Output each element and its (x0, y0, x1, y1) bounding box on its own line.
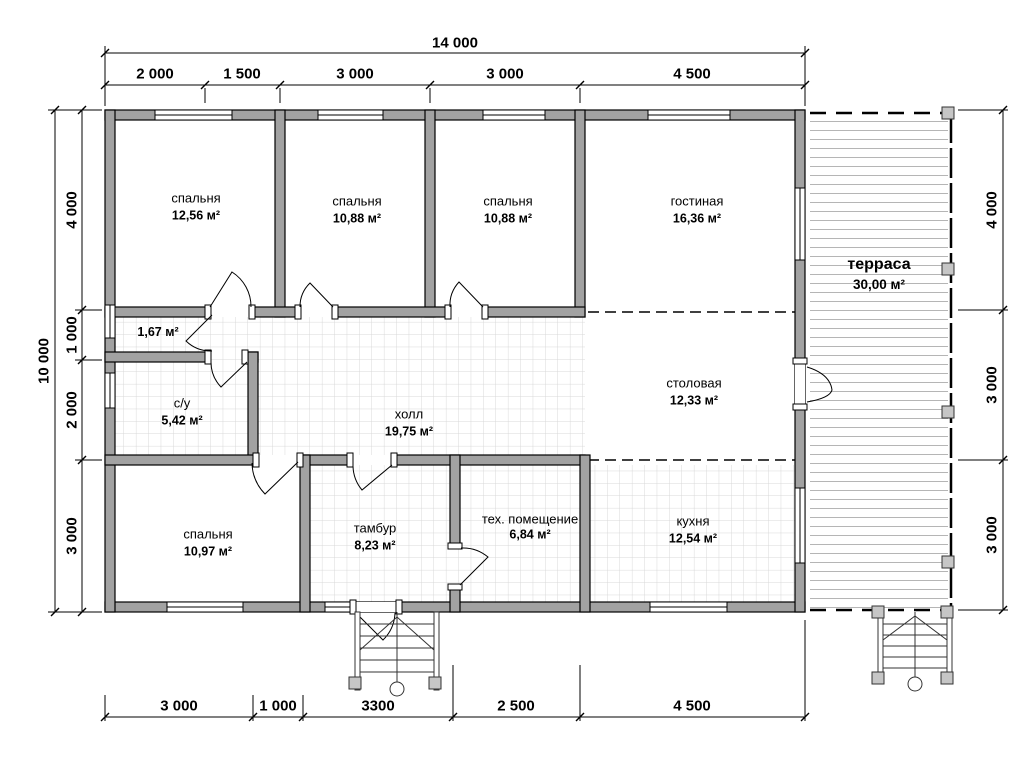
room-label-hall: холл 19,75 м² (385, 406, 433, 439)
window-top-livingroom (648, 110, 730, 120)
room-area: 10,97 м² (183, 543, 232, 559)
dim-bottom-seg-4: 2 500 (497, 698, 535, 715)
room-label-closet: 1,67 м² (137, 324, 178, 340)
room-label-diningroom: столовая 12,33 м² (666, 375, 721, 408)
room-label-bedroom-1: спальня 12,56 м² (171, 190, 220, 223)
dim-bottom-seg-1: 3 000 (160, 698, 198, 715)
room-label-bedroom-2: спальня 10,88 м² (332, 193, 381, 226)
room-name: столовая (666, 375, 721, 392)
dim-bottom-seg-2: 1 000 (259, 698, 297, 715)
room-area: 6,84 м² (477, 527, 583, 541)
dim-left-seg-3: 2 000 (64, 391, 81, 429)
room-label-vestibule: тамбур 8,23 м² (354, 520, 397, 553)
room-area: 12,54 м² (669, 530, 717, 546)
room-area: 10,88 м² (483, 210, 532, 226)
dim-top-seg-1: 2 000 (136, 66, 174, 83)
room-area: 5,42 м² (161, 412, 202, 428)
room-name: спальня (171, 190, 220, 207)
dim-bottom-seg-3: 3300 (361, 698, 394, 715)
dim-top-seg-5: 4 500 (673, 66, 711, 83)
room-name: гостиная (671, 193, 724, 210)
room-label-terrace: терраса 30,00 м² (847, 255, 910, 293)
dim-top-total: 14 000 (432, 35, 478, 52)
room-name: спальня (483, 193, 532, 210)
window-left-bathroom (105, 373, 115, 408)
window-bottom-kitchen (650, 602, 727, 612)
dim-top-seg-3: 3 000 (336, 66, 374, 83)
room-area: 16,36 м² (671, 210, 724, 226)
room-label-utility: тех. помещение 6,84 м² (477, 512, 583, 541)
room-label-livingroom: гостиная 16,36 м² (671, 193, 724, 226)
dim-left-seg-1: 4 000 (64, 191, 81, 229)
room-area: 19,75 м² (385, 423, 433, 439)
room-name: тех. помещение (477, 512, 583, 527)
room-name: с/у (161, 395, 202, 412)
room-area: 8,23 м² (354, 537, 397, 553)
dim-left-seg-2: 1 000 (64, 316, 81, 354)
window-top-bedroom3 (483, 110, 545, 120)
window-bottom-vestibule (325, 602, 353, 612)
room-label-kitchen: кухня 12,54 м² (669, 513, 717, 546)
terrace-deck-hatch (810, 113, 951, 610)
dim-left-total: 10 000 (36, 338, 53, 384)
window-top-bedroom2 (318, 110, 383, 120)
dim-bottom-seg-5: 4 500 (673, 698, 711, 715)
floor-plan-canvas: спальня 12,56 м² спальня 10,88 м² спальн… (0, 0, 1028, 771)
terrace-porch-stairs (872, 606, 953, 691)
room-label-bedroom-4: спальня 10,97 м² (183, 526, 232, 559)
room-name: спальня (183, 526, 232, 543)
room-name: тамбур (354, 520, 397, 537)
room-name: терраса (847, 255, 910, 276)
floor-plan-drawing (0, 0, 1028, 771)
room-name: кухня (669, 513, 717, 530)
room-area: 12,33 м² (666, 392, 721, 408)
dim-right-seg-3: 3 000 (984, 516, 1001, 554)
dim-top-seg-4: 3 000 (486, 66, 524, 83)
room-name: холл (385, 406, 433, 423)
room-name: спальня (332, 193, 381, 210)
room-area: 30,00 м² (847, 276, 910, 294)
dim-top-seg-2: 1 500 (223, 66, 261, 83)
room-area: 10,88 м² (332, 210, 381, 226)
room-label-bedroom-3: спальня 10,88 м² (483, 193, 532, 226)
dim-left-seg-4: 3 000 (64, 517, 81, 555)
window-bottom-bedroom4 (167, 602, 243, 612)
window-right-livingroom (795, 188, 805, 260)
dim-right-seg-1: 4 000 (984, 191, 1001, 229)
window-left-closet (105, 305, 115, 338)
dim-right-seg-2: 3 000 (984, 366, 1001, 404)
room-area: 1,67 м² (137, 324, 178, 340)
room-area: 12,56 м² (171, 207, 220, 223)
window-right-kitchen (795, 488, 805, 563)
entrance-porch-stairs (349, 612, 441, 696)
room-label-bathroom: с/у 5,42 м² (161, 395, 202, 428)
window-top-bedroom1 (155, 110, 232, 120)
